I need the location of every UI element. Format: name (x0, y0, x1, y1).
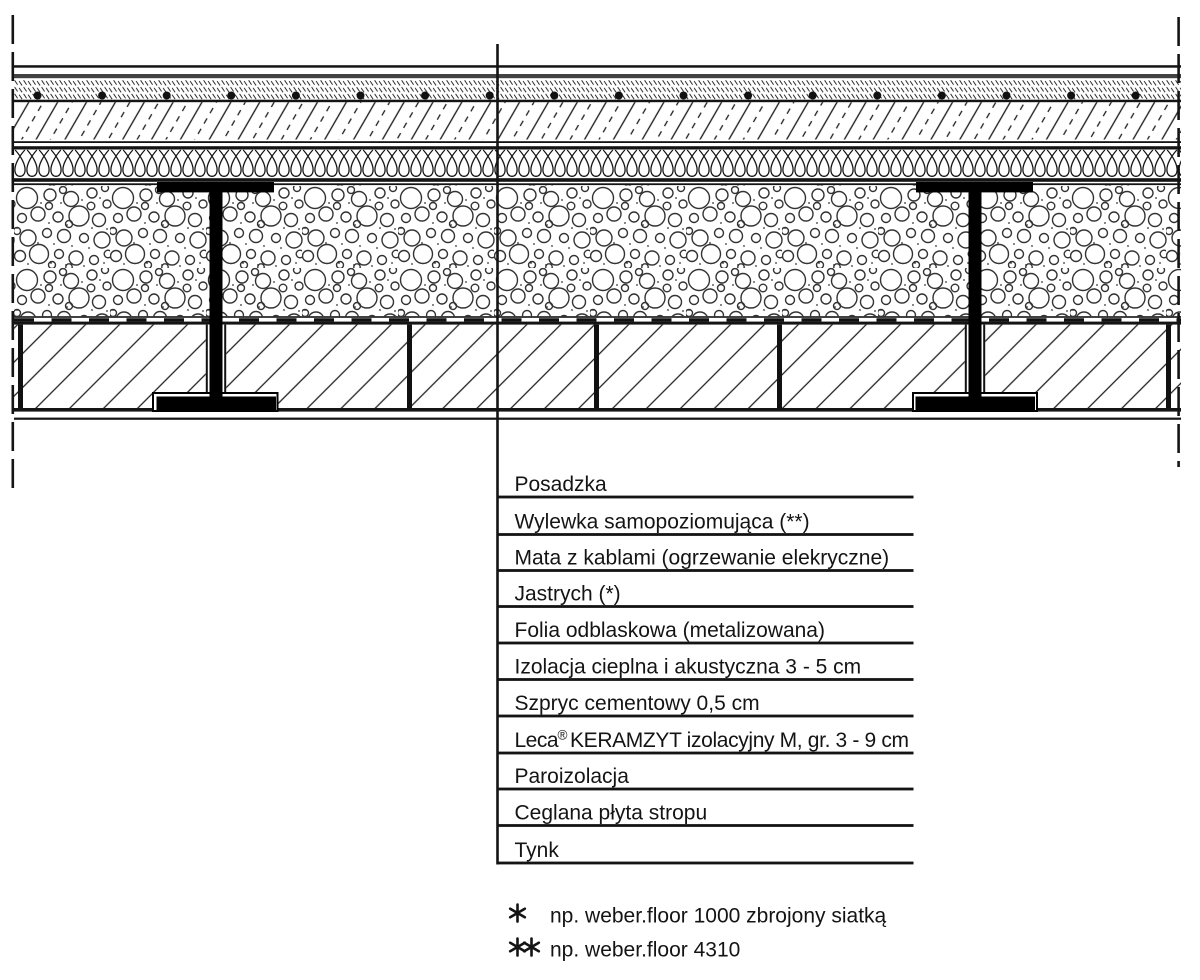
svg-text:Izolacja cieplna i akustyczna: Izolacja cieplna i akustyczna 3 - 5 cm (515, 655, 862, 678)
svg-text:Posadzka: Posadzka (515, 473, 608, 496)
svg-text:Wylewka samopoziomująca (**): Wylewka samopoziomująca (**) (515, 510, 810, 533)
svg-text:np. weber.floor 4310: np. weber.floor 4310 (550, 939, 740, 962)
svg-text:Mata z kablami (ogrzewanie ele: Mata z kablami (ogrzewanie elekryczne) (515, 546, 890, 569)
svg-text:np. weber.floor 1000 zbrojony: np. weber.floor 1000 zbrojony siatką (550, 905, 887, 928)
svg-text:Szpryc cementowy 0,5 cm: Szpryc cementowy 0,5 cm (515, 692, 760, 715)
svg-text:Leca: Leca (515, 729, 559, 752)
svg-text:KERAMZYT izolacyjny M, gr. 3 -: KERAMZYT izolacyjny M, gr. 3 - 9 cm (570, 729, 909, 752)
svg-text:Tynk: Tynk (515, 839, 560, 862)
svg-text:Jastrych (*): Jastrych (*) (515, 582, 621, 605)
svg-text:Paroizolacja: Paroizolacja (515, 765, 630, 788)
svg-text:®: ® (558, 728, 568, 743)
svg-text:Folia odblaskowa (metalizowana: Folia odblaskowa (metalizowana) (515, 619, 825, 642)
svg-text:Ceglana płyta stropu: Ceglana płyta stropu (515, 801, 708, 824)
